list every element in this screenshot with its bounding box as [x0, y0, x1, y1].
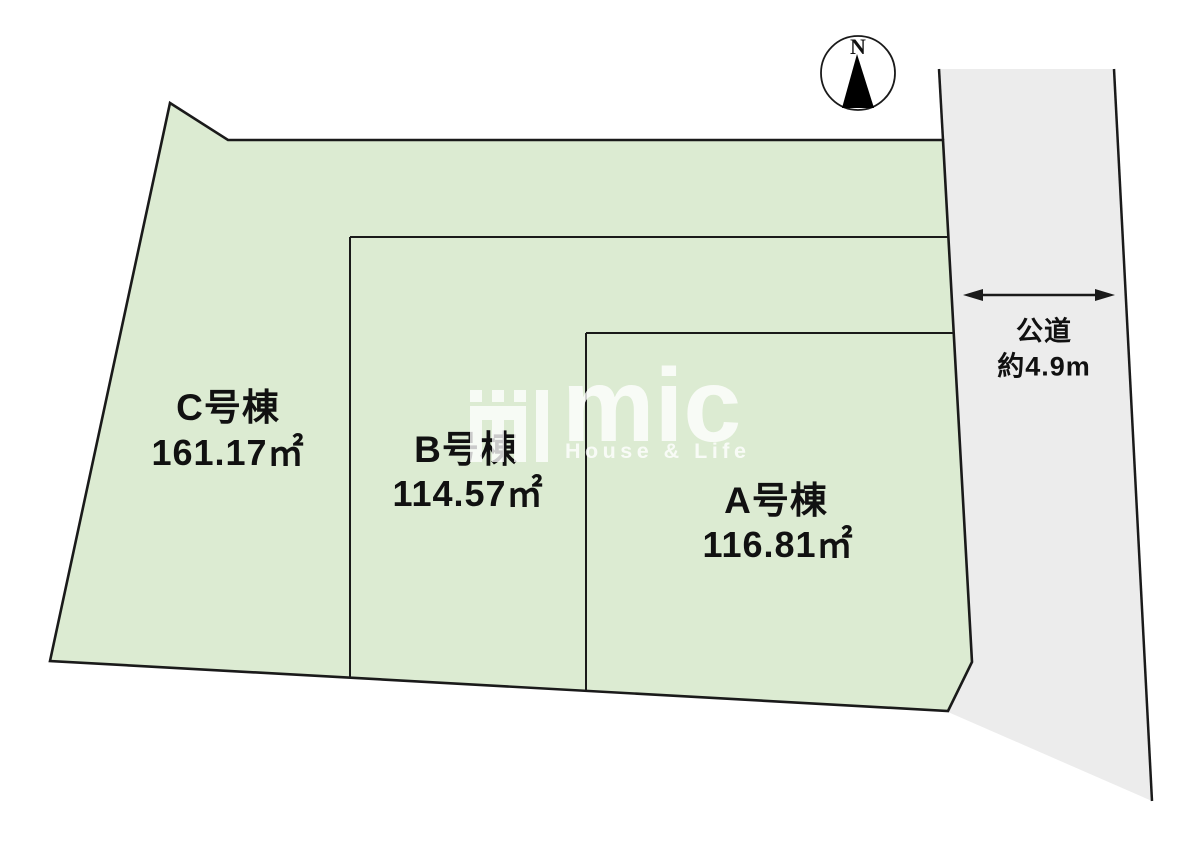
lot-c-name: C号棟	[176, 377, 280, 431]
road-width-label: 約4.9m	[997, 345, 1091, 384]
lot-c-area: 161.17㎡	[151, 424, 304, 476]
labels-layer: C号棟 161.17㎡ B号棟 114.57㎡ A号棟 116.81㎡ 公道 約…	[0, 0, 1200, 841]
lot-a-area: 116.81㎡	[702, 516, 853, 568]
compass-north-label: N	[850, 34, 866, 60]
lot-b-area: 114.57㎡	[392, 465, 543, 517]
road-name-label: 公道	[1016, 310, 1072, 349]
lot-layout-diagram: C号棟 161.17㎡ B号棟 114.57㎡ A号棟 116.81㎡ 公道 約…	[0, 0, 1200, 841]
